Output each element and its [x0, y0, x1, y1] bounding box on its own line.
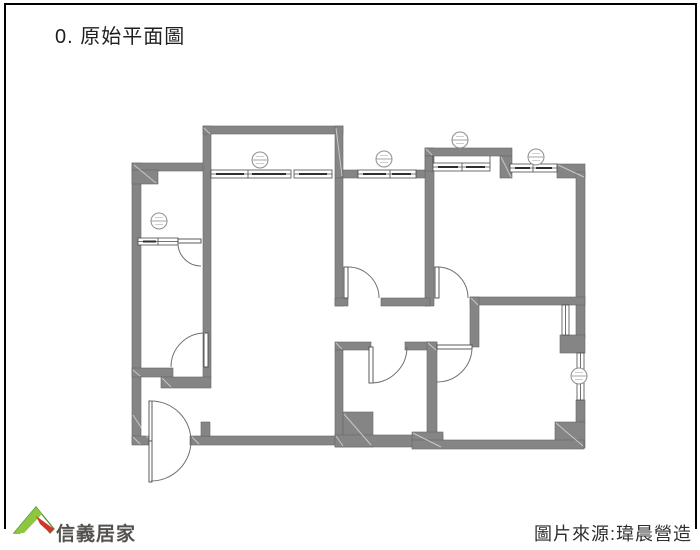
floor-plan-drawing: [0, 0, 700, 550]
window-tag-icon: [452, 132, 468, 148]
window-tag-icon: [528, 149, 544, 165]
window-tag-icon: [376, 151, 392, 167]
brand-name: 信義居家: [56, 519, 136, 546]
image-source-credit: 圖片來源:瑋晨營造: [534, 520, 692, 546]
window-tag-icon: [252, 152, 268, 168]
window-tag-icon: [151, 213, 167, 229]
brand-logo-icon: [12, 503, 56, 537]
window-tag-icon: [571, 368, 587, 384]
